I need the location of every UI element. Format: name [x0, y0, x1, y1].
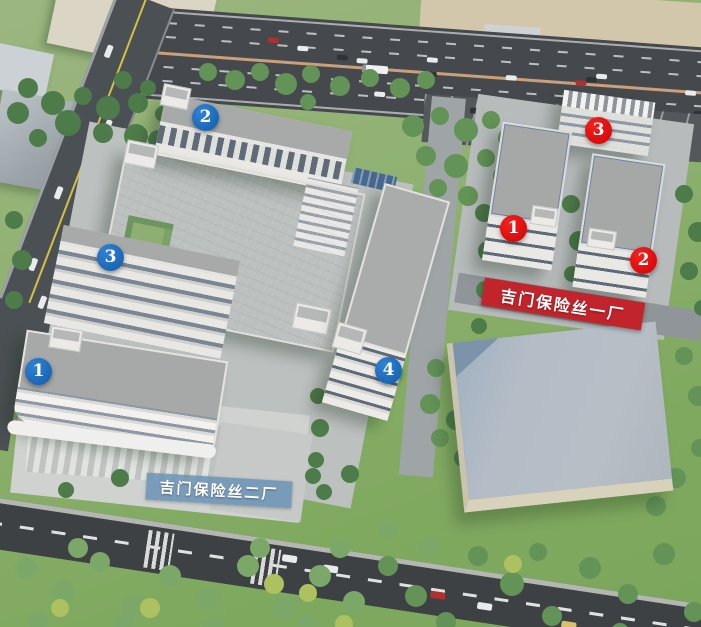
tree-cluster	[0, 0, 16, 16]
marker-label: 3	[105, 249, 117, 266]
marker-label: 1	[33, 363, 45, 380]
cars	[297, 46, 308, 52]
cars	[337, 55, 348, 61]
crosswalk	[250, 546, 281, 587]
rooftop-box	[587, 228, 618, 251]
marker-red-3: 3	[585, 117, 612, 144]
marker-red-2: 2	[630, 247, 657, 274]
aerial-site-map: 吉门保险丝一厂 吉门保险丝二厂 1 2 3 4 1 2 3	[0, 0, 701, 627]
marker-label: 2	[200, 109, 212, 126]
marker-label: 1	[508, 220, 520, 237]
marker-blue-1: 1	[25, 358, 52, 385]
roof-shading	[453, 338, 502, 377]
bottom-road	[0, 497, 701, 627]
banner-factory-two-label: 吉门保险丝二厂	[159, 476, 279, 504]
rooftop-box	[48, 325, 83, 352]
warehouse	[447, 321, 674, 512]
marker-label: 3	[593, 122, 605, 139]
cars	[104, 44, 114, 58]
marker-blue-2: 2	[192, 104, 219, 131]
marker-red-1: 1	[500, 215, 527, 242]
marker-label: 2	[638, 252, 650, 269]
rooftop-box	[292, 302, 332, 335]
roof	[489, 122, 572, 226]
marker-blue-4: 4	[375, 357, 402, 384]
cars	[282, 554, 298, 563]
truck	[362, 64, 389, 74]
center-dashed-line	[0, 521, 701, 627]
marker-blue-3: 3	[97, 244, 124, 271]
crosswalk	[143, 530, 174, 571]
cars	[268, 37, 279, 43]
rooftop-box	[530, 205, 559, 228]
entrance-drive	[209, 422, 312, 522]
rooftop-box	[123, 139, 159, 169]
marker-label: 4	[383, 362, 395, 379]
